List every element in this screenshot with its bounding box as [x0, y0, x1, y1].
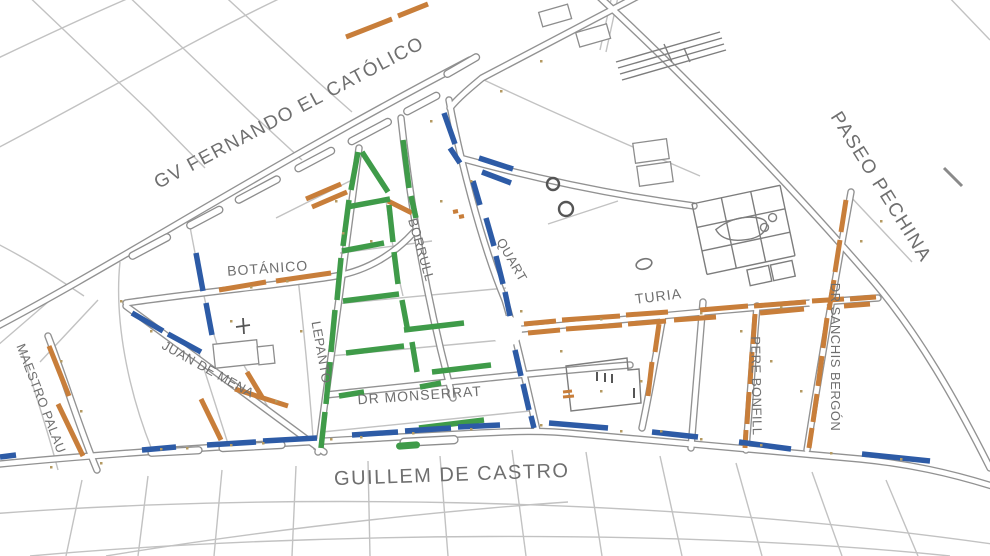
map-tick	[860, 240, 863, 243]
street-label-turia: TURIA	[634, 285, 683, 307]
map-tick	[150, 330, 153, 333]
green-zone-segment	[362, 152, 388, 192]
map-tick	[830, 452, 833, 455]
small-buildings	[539, 4, 674, 186]
map-tick	[370, 240, 373, 243]
map-tick	[470, 180, 473, 183]
map-tick	[335, 200, 338, 203]
map-tick	[620, 430, 623, 433]
map-tick	[120, 300, 123, 303]
map-tick	[360, 436, 363, 439]
street-label-guillem-de-castro: GUILLEM DE CASTRO	[334, 460, 570, 490]
orange-zone-segment	[524, 321, 556, 324]
blue-zone-segment	[549, 423, 608, 428]
map-tick	[230, 320, 233, 323]
hatched-building	[616, 32, 726, 80]
orange-zone-segment	[49, 346, 69, 396]
map-tick	[286, 280, 289, 283]
city-map-svg: GV FERNANDO EL CATÓLICO PASEO PECHINA BO…	[0, 0, 990, 556]
street-label-dr-sanchis-bergon: DR SANCHIS BERGÓN	[828, 283, 843, 432]
orange-zone-segment	[674, 317, 716, 320]
map-tick	[412, 432, 415, 435]
map-tick	[600, 390, 603, 393]
green-zone-segment	[389, 205, 393, 242]
green-zone-segment	[343, 294, 399, 301]
map-tick	[540, 60, 543, 63]
blue-zone-segment	[196, 253, 203, 291]
green-zone-segment	[404, 323, 464, 330]
green-zone-segment	[346, 346, 404, 353]
map-tick	[770, 360, 773, 363]
map-tick	[500, 90, 503, 93]
orange-zone-segment	[850, 297, 876, 299]
map-tick	[660, 430, 663, 433]
orange-zone-segment	[563, 391, 572, 392]
orange-zone-segment	[809, 428, 812, 448]
map-tick	[250, 286, 253, 289]
map-tick	[600, 318, 603, 321]
green-zone-segment	[394, 252, 398, 284]
blue-zone-segment	[405, 428, 451, 431]
street-label-pere-bonfill: PERE BONFILL	[748, 336, 765, 435]
blue-zone-segment	[531, 416, 534, 428]
green-zone-segment	[412, 342, 417, 372]
map-tick	[60, 360, 63, 363]
map-tick	[700, 312, 703, 315]
map-tick	[275, 400, 278, 403]
blue-zone-segment	[206, 303, 212, 335]
orange-zone-segment	[563, 396, 574, 397]
orange-zone-segment	[628, 321, 666, 324]
map-tick	[100, 462, 103, 465]
map-tick	[342, 232, 345, 235]
blue-zone-segment	[132, 313, 163, 331]
map-tick	[160, 448, 163, 451]
orange-zone-segment	[453, 211, 458, 212]
map-tick	[230, 444, 233, 447]
orange-zone-segment	[459, 216, 464, 217]
map-tick	[470, 428, 473, 431]
map-tick	[560, 350, 563, 353]
blue-zone-segment	[0, 455, 16, 457]
flag-building	[213, 318, 275, 368]
map-tick	[186, 447, 189, 450]
blue-zone-segment	[142, 447, 176, 450]
map-tick	[80, 410, 83, 413]
map-tick	[640, 380, 643, 383]
blue-zone-segment	[458, 425, 500, 427]
map-tick	[700, 438, 703, 441]
map-tick	[760, 444, 763, 447]
street-label-maestro-palau: MAESTRO PALAU	[13, 342, 69, 456]
map-tick	[440, 200, 443, 203]
map-tick	[900, 458, 903, 461]
orange-zone-segment	[747, 392, 749, 424]
map-tick	[430, 120, 433, 123]
orange-zone-segment	[398, 4, 428, 16]
orange-zone-segment	[201, 399, 221, 440]
green-zone-segment	[432, 365, 491, 372]
street-label-borrull: BORRULL	[405, 216, 437, 283]
pechina-tick	[944, 168, 962, 186]
map-tick	[880, 220, 883, 223]
blue-zone-segment	[263, 438, 317, 441]
map-tick	[800, 390, 803, 393]
orange-zone-segment	[346, 19, 392, 37]
map-canvas: GV FERNANDO EL CATÓLICO PASEO PECHINA BO…	[0, 0, 990, 556]
map-tick	[50, 466, 53, 469]
orange-zone-segment	[844, 304, 870, 306]
blue-zone-segment	[352, 432, 398, 435]
map-tick	[262, 442, 265, 445]
map-tick	[520, 310, 523, 313]
orange-zone-segment	[528, 330, 560, 333]
street-paseo-pechina	[594, 0, 990, 468]
garden-plot-grid	[692, 185, 799, 294]
map-tick	[740, 330, 743, 333]
map-tick	[780, 306, 783, 309]
map-tick	[540, 424, 543, 427]
map-tick	[330, 438, 333, 441]
orange-zone-segment	[626, 312, 668, 315]
map-tick	[300, 330, 303, 333]
